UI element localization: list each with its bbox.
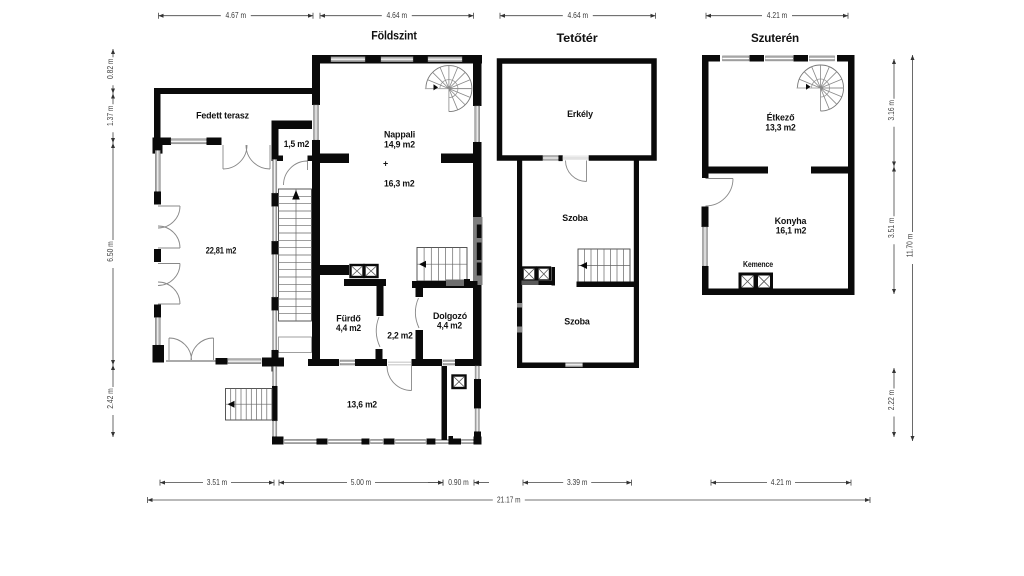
svg-text:16,1 m2: 16,1 m2 — [776, 226, 807, 236]
svg-text:4.64 m: 4.64 m — [387, 11, 408, 20]
svg-text:0.90 m: 0.90 m — [448, 478, 469, 487]
svg-text:+: + — [383, 159, 388, 169]
svg-text:3.16 m: 3.16 m — [887, 100, 896, 121]
svg-text:6.50 m: 6.50 m — [106, 241, 115, 262]
svg-text:11.70 m: 11.70 m — [906, 233, 915, 257]
svg-text:2.22 m: 2.22 m — [887, 389, 896, 410]
svg-text:Konyha: Konyha — [775, 216, 807, 226]
svg-text:16,3 m2: 16,3 m2 — [384, 179, 415, 189]
svg-text:13,6 m2: 13,6 m2 — [347, 400, 377, 410]
svg-text:4.21 m: 4.21 m — [771, 478, 792, 487]
svg-text:13,3 m2: 13,3 m2 — [765, 122, 795, 132]
svg-text:0.82 m: 0.82 m — [106, 58, 115, 79]
svg-text:1.37 m: 1.37 m — [106, 105, 115, 126]
svg-text:4.67 m: 4.67 m — [226, 11, 247, 20]
svg-text:Földszint: Földszint — [371, 30, 417, 43]
svg-text:22,81 m2: 22,81 m2 — [206, 246, 237, 256]
svg-text:4,4 m2: 4,4 m2 — [336, 323, 361, 333]
svg-text:2,2 m2: 2,2 m2 — [387, 330, 413, 340]
svg-text:14,9 m2: 14,9 m2 — [384, 140, 415, 150]
svg-text:3.51 m: 3.51 m — [887, 217, 896, 238]
svg-text:Fürdő: Fürdő — [336, 314, 361, 324]
svg-text:Tetőtér: Tetőtér — [557, 32, 599, 45]
svg-text:4,4 m2: 4,4 m2 — [437, 321, 462, 331]
svg-text:Fedett terasz: Fedett terasz — [196, 111, 250, 121]
svg-text:Nappali: Nappali — [384, 130, 415, 140]
svg-text:Szoba: Szoba — [564, 317, 590, 327]
svg-text:Szoba: Szoba — [562, 213, 588, 223]
svg-text:Szuterén: Szuterén — [751, 32, 799, 45]
svg-text:3.51 m: 3.51 m — [207, 478, 228, 487]
svg-text:3.39 m: 3.39 m — [567, 478, 588, 487]
svg-text:Dolgozó: Dolgozó — [433, 311, 468, 321]
svg-text:Étkező: Étkező — [767, 113, 795, 123]
svg-text:Erkély: Erkély — [567, 109, 593, 119]
svg-text:5.00 m: 5.00 m — [351, 478, 372, 487]
svg-text:Kemence: Kemence — [743, 259, 773, 269]
svg-text:1,5 m2: 1,5 m2 — [284, 139, 310, 149]
svg-text:4.21 m: 4.21 m — [767, 11, 788, 20]
svg-text:21.17 m: 21.17 m — [497, 495, 521, 504]
svg-text:2.42 m: 2.42 m — [106, 388, 115, 409]
svg-text:4.64 m: 4.64 m — [568, 11, 589, 20]
